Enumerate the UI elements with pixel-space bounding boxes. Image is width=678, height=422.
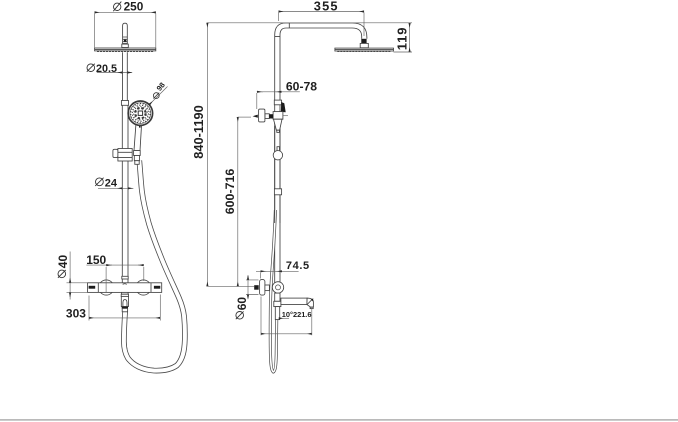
svg-text:24: 24 <box>105 177 118 189</box>
svg-text:10°221.6: 10°221.6 <box>282 310 312 319</box>
svg-text:355: 355 <box>314 0 339 14</box>
svg-text:303: 303 <box>66 306 86 320</box>
svg-text:98: 98 <box>155 81 167 93</box>
svg-text:840-1190: 840-1190 <box>191 105 206 158</box>
svg-text:40: 40 <box>56 255 70 269</box>
svg-text:119: 119 <box>395 27 410 51</box>
svg-text:20.5: 20.5 <box>96 63 117 75</box>
svg-text:60-78: 60-78 <box>286 80 317 94</box>
svg-text:74.5: 74.5 <box>286 260 310 272</box>
svg-text:600-716: 600-716 <box>223 169 237 215</box>
svg-text:60: 60 <box>235 297 249 311</box>
svg-text:150: 150 <box>86 253 106 267</box>
svg-text:250: 250 <box>124 0 144 14</box>
